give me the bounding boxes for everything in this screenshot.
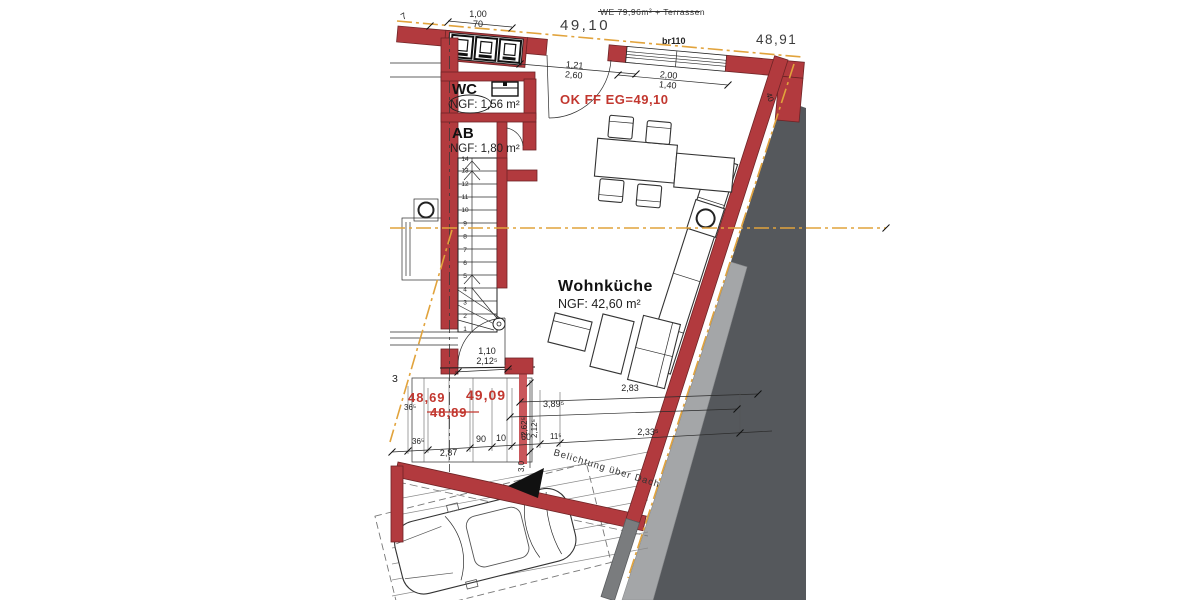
dim-2-83: 2,83	[621, 383, 639, 393]
dim-10: 10	[496, 433, 506, 443]
armchair	[548, 313, 592, 351]
stair-number: 1	[463, 326, 467, 333]
coffee-table	[590, 314, 634, 374]
dim-3-89: 3,89⁵	[543, 399, 565, 409]
dim-36-lower: 36⁵	[412, 437, 424, 446]
stair-number: 8	[463, 234, 467, 241]
dim-90: 90	[476, 434, 486, 444]
floorplan-canvas: 1 2 3 4 5 6 7 8 9 10 11 12 13 14	[0, 0, 1200, 600]
lounge-group	[548, 313, 680, 389]
dim-2-12-vertical: 2,12⁵	[530, 419, 539, 438]
stair-number: 4	[463, 286, 467, 293]
floorplan-drawing: 1 2 3 4 5 6 7 8 9 10 11 12 13 14	[0, 0, 1200, 600]
stair-number: 13	[461, 168, 469, 175]
stair-number: 9	[463, 220, 467, 227]
stair-number: 7	[463, 247, 467, 254]
stair-number: 11	[462, 194, 469, 201]
wall-southwest-stub	[391, 466, 403, 542]
dim-1-40: 1,40	[659, 79, 677, 90]
stair-spine-wall	[497, 158, 507, 288]
dim-2-62-vertical: 2,62⁵	[520, 417, 529, 436]
label-level-top-right: 48,91	[756, 32, 797, 47]
label-room-wohnkueche: Wohnküche	[558, 278, 653, 295]
chair	[608, 115, 634, 139]
chair	[636, 184, 662, 208]
stair-number: 2	[463, 313, 467, 320]
dim-7: 7	[399, 11, 408, 22]
appliance-niche	[450, 35, 521, 63]
dim-3-0-vertical: 3,0	[517, 460, 526, 472]
label-level-terrace-b: 49,09	[466, 387, 506, 403]
label-area-wc: NGF: 1,56 m²	[450, 99, 520, 111]
dim-11: 11⁵	[550, 432, 562, 441]
column-circle	[419, 203, 434, 218]
label-lintel: br110	[662, 36, 686, 46]
label-room-ab: AB	[452, 125, 474, 142]
dining-table	[594, 138, 677, 183]
stair-number: 3	[463, 300, 467, 307]
label-area-ab: NGF: 1,80 m²	[450, 143, 520, 155]
dim-2-12: 2,12⁵	[476, 356, 498, 366]
dim-36-upper: 36⁵	[404, 403, 416, 412]
stair-newel	[493, 318, 505, 330]
chair	[646, 121, 672, 145]
label-area-wohnkueche: NGF: 42,60 m²	[558, 297, 641, 311]
dim-1-10: 1,10	[478, 346, 496, 356]
dim-1-00: 1,00	[469, 9, 487, 19]
dim-2-87: 2,87	[440, 447, 458, 458]
dim-2-60: 2,60	[565, 69, 583, 80]
stair-number: 12	[461, 181, 469, 188]
label-ok-ff: OK FF EG=49,10	[560, 92, 669, 107]
sideboard	[674, 153, 735, 192]
stair-number: 5	[463, 273, 467, 280]
toilet-icon	[492, 82, 518, 96]
dim-2-33: 2,33⁵	[637, 427, 659, 437]
stair-number: 14	[461, 156, 469, 163]
staircase: 1 2 3 4 5 6 7 8 9 10 11 12 13 14	[458, 156, 507, 333]
chair	[598, 179, 624, 203]
stair-number: 10	[461, 207, 469, 214]
label-level-top: 49,10	[560, 17, 610, 34]
stair-number: 6	[463, 260, 467, 267]
dim-70: 70	[473, 19, 483, 29]
dim-3: 3	[392, 373, 398, 385]
window-north	[626, 46, 727, 71]
